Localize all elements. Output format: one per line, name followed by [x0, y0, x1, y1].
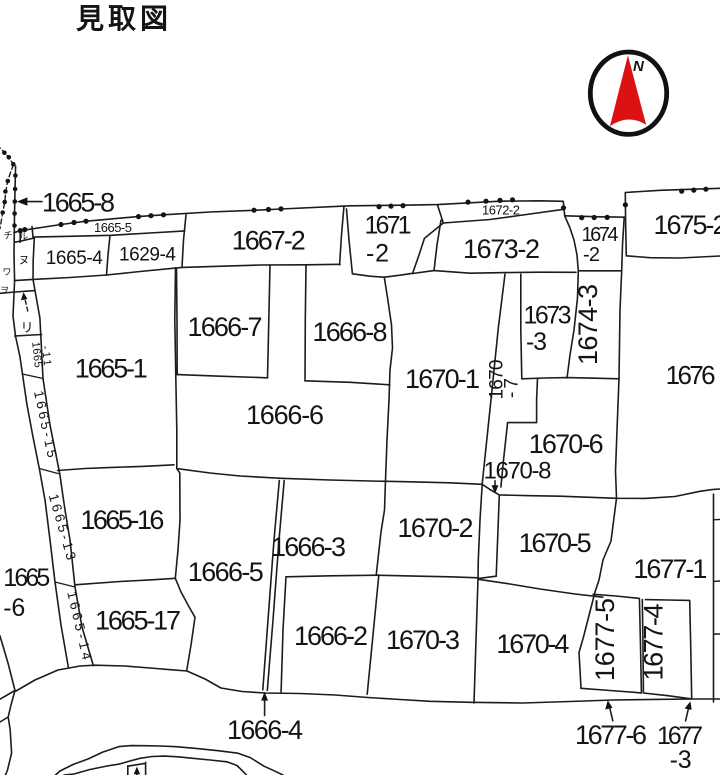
svg-text:1666-3: 1666-3	[271, 532, 346, 562]
svg-text:1665-4: 1665-4	[46, 248, 103, 269]
svg-text:1676: 1676	[666, 360, 716, 390]
svg-text:-7: -7	[502, 378, 523, 398]
svg-text:1666-5: 1666-5	[188, 557, 264, 587]
svg-text:チ: チ	[4, 231, 13, 241]
svg-text:N: N	[633, 58, 645, 75]
svg-text:1670-6: 1670-6	[529, 429, 604, 459]
svg-text:1665-17: 1665-17	[95, 606, 181, 636]
svg-text:ヲ: ヲ	[0, 286, 9, 296]
svg-text:1666-4: 1666-4	[227, 715, 303, 745]
svg-text:1670-1: 1670-1	[405, 364, 480, 394]
svg-text:1665-16: 1665-16	[80, 505, 164, 535]
svg-text:-6: -6	[3, 594, 25, 622]
svg-text:1670-2: 1670-2	[398, 513, 474, 543]
svg-text:1673: 1673	[524, 302, 572, 330]
svg-text:1671: 1671	[365, 212, 412, 240]
svg-text:1677-5: 1677-5	[590, 598, 620, 681]
svg-text:1666-8: 1666-8	[313, 317, 388, 347]
svg-text:1677-6: 1677-6	[575, 720, 647, 750]
svg-text:1674-3: 1674-3	[573, 284, 603, 365]
svg-text:1665-5: 1665-5	[94, 220, 132, 235]
svg-text:1665-1: 1665-1	[75, 354, 148, 384]
svg-text:1670-3: 1670-3	[386, 625, 460, 655]
svg-text:1672-2: 1672-2	[482, 203, 520, 218]
svg-text:1670-8: 1670-8	[484, 458, 552, 485]
svg-text:リ: リ	[21, 320, 34, 335]
svg-text:ヌ: ヌ	[19, 255, 30, 267]
svg-text:見取図: 見取図	[76, 3, 172, 34]
svg-text:1667-2: 1667-2	[232, 226, 306, 256]
svg-text:ワ: ワ	[3, 267, 12, 277]
svg-text:1675-2: 1675-2	[654, 210, 720, 240]
svg-text:1666-6: 1666-6	[246, 400, 324, 430]
svg-text:-3: -3	[526, 328, 547, 356]
svg-text:1665: 1665	[3, 564, 50, 592]
svg-text:1670-5: 1670-5	[519, 528, 592, 558]
svg-text:1666-7: 1666-7	[188, 312, 263, 342]
svg-text:1674: 1674	[582, 224, 619, 246]
svg-text:1670-4: 1670-4	[496, 629, 569, 659]
svg-text:1665-8: 1665-8	[42, 188, 115, 218]
svg-text:1677-1: 1677-1	[633, 554, 707, 584]
svg-text:1673-2: 1673-2	[463, 234, 540, 264]
svg-text:-2: -2	[366, 240, 389, 268]
svg-text:1629-4: 1629-4	[119, 245, 176, 266]
svg-text:1677-4: 1677-4	[639, 604, 669, 681]
svg-text:1666-2: 1666-2	[294, 621, 368, 651]
svg-text:-2: -2	[583, 244, 600, 266]
svg-text:-11: -11	[39, 345, 53, 366]
svg-text:-3: -3	[670, 746, 692, 774]
